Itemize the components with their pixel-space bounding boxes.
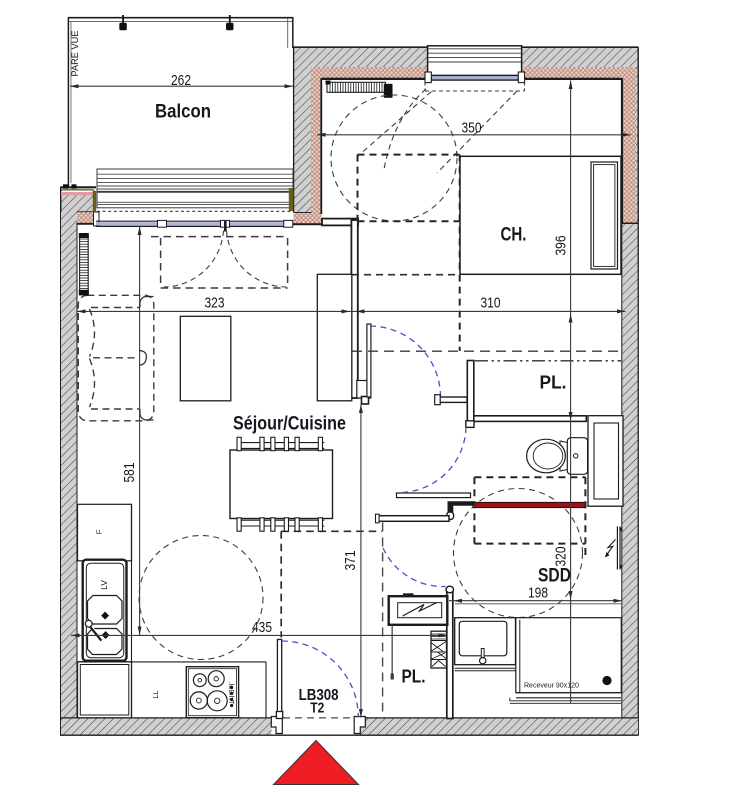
svg-text:PL.: PL.	[402, 667, 426, 687]
svg-text:396: 396	[553, 236, 570, 256]
svg-text:T2: T2	[310, 700, 324, 716]
svg-text:LL: LL	[151, 690, 160, 698]
svg-text:Séjour/Cuisine: Séjour/Cuisine	[233, 413, 346, 435]
svg-text:262: 262	[171, 72, 191, 89]
svg-text:PARE VUE: PARE VUE	[70, 31, 81, 77]
svg-text:310: 310	[481, 295, 501, 312]
svg-text:LV: LV	[99, 580, 109, 590]
svg-text:F: F	[95, 529, 104, 534]
svg-text:435: 435	[252, 619, 272, 636]
svg-text:350: 350	[462, 120, 482, 137]
svg-text:CH.: CH.	[501, 225, 527, 246]
svg-text:.le8.hT: .le8.hT	[227, 682, 236, 705]
svg-text:198: 198	[528, 585, 548, 602]
svg-text:320: 320	[553, 547, 570, 567]
svg-text:SDD: SDD	[538, 565, 571, 586]
svg-text:581: 581	[121, 463, 138, 483]
svg-text:Balcon: Balcon	[155, 102, 211, 123]
svg-text:PL.: PL.	[540, 373, 567, 393]
svg-text:371: 371	[342, 551, 359, 571]
svg-text:Receveur 90x120: Receveur 90x120	[524, 683, 579, 690]
svg-text:323: 323	[205, 295, 225, 312]
